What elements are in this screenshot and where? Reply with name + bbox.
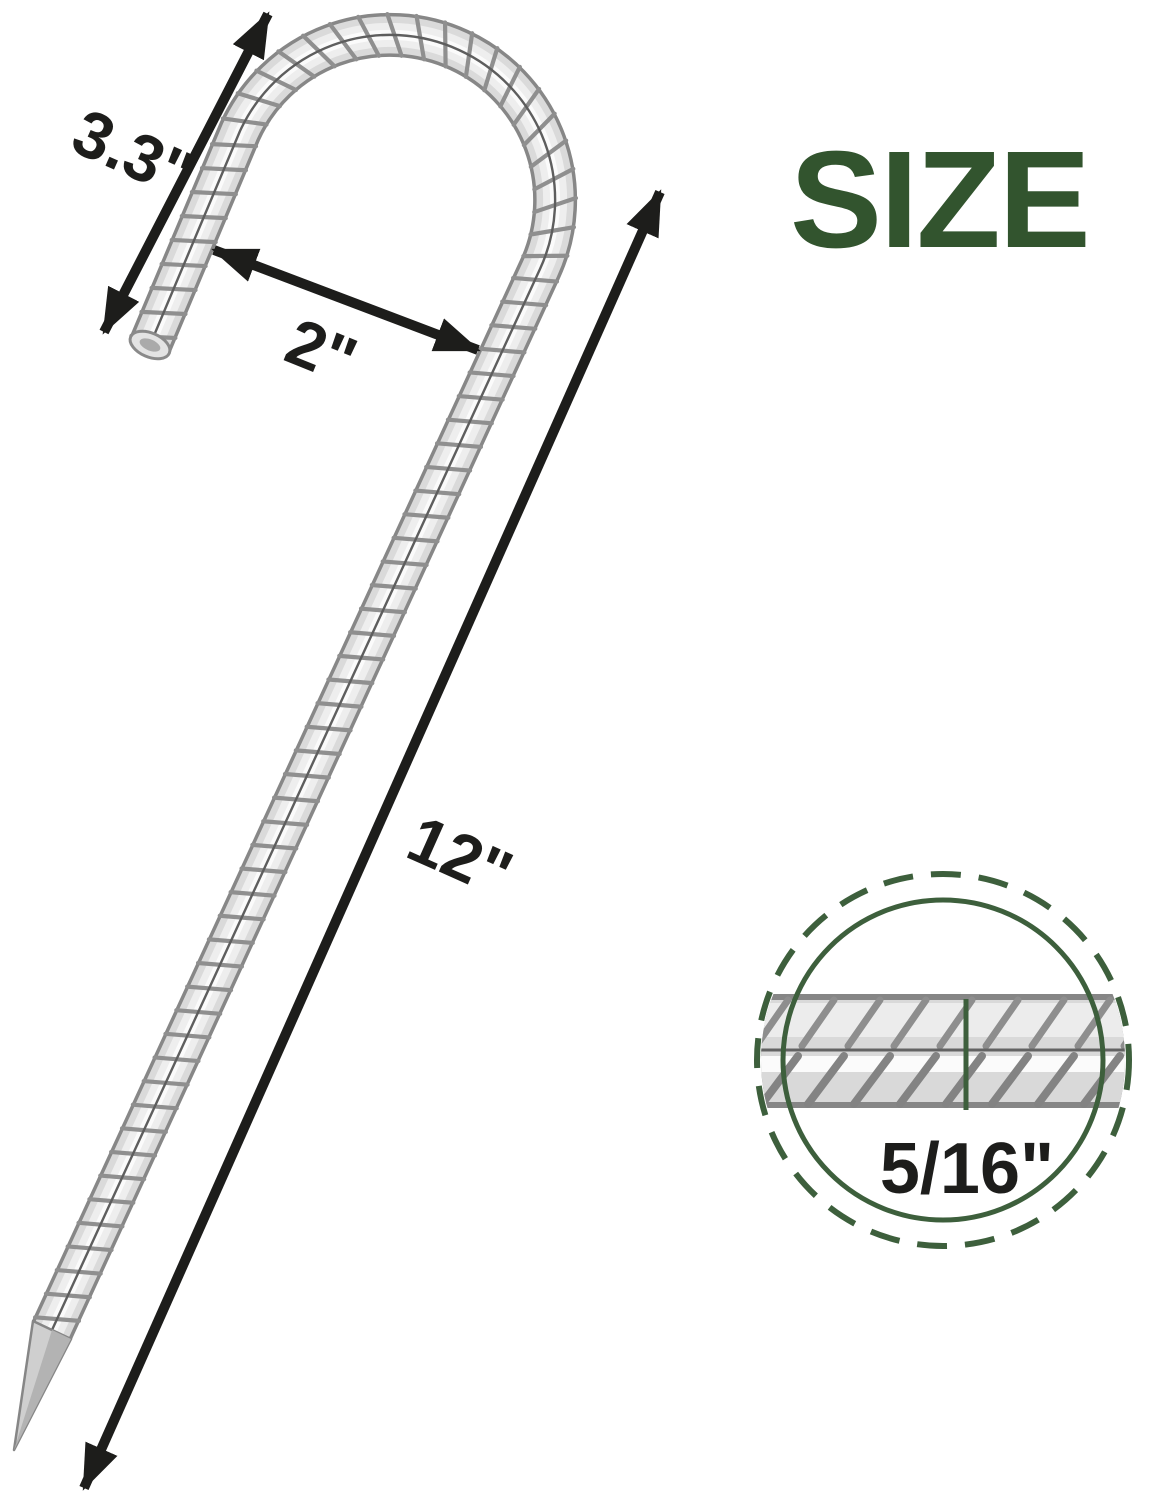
- rebar-rib-texture: [35, 14, 576, 1321]
- rebar-stake-size-diagram: 3.3" 2" 12" SIZE 5/16": [0, 0, 1150, 1500]
- size-diagram-page: 3.3" 2" 12" SIZE 5/16": [0, 0, 1150, 1500]
- stake-length-arrow: [84, 192, 660, 1488]
- hook-height-label: 3.3": [62, 94, 205, 212]
- stake-length-label: 12": [397, 801, 523, 911]
- page-title: SIZE: [790, 123, 1089, 277]
- diameter-detail-circle: 5/16": [755, 874, 1150, 1246]
- rib-mark: [1130, 1056, 1150, 1104]
- rebar-cross-section-closeup: [755, 999, 1150, 1110]
- rebar-stake-illustration: [14, 14, 576, 1450]
- rebar-diameter-label: 5/16": [880, 1129, 1054, 1209]
- hook-inner-width-label: 2": [276, 304, 367, 398]
